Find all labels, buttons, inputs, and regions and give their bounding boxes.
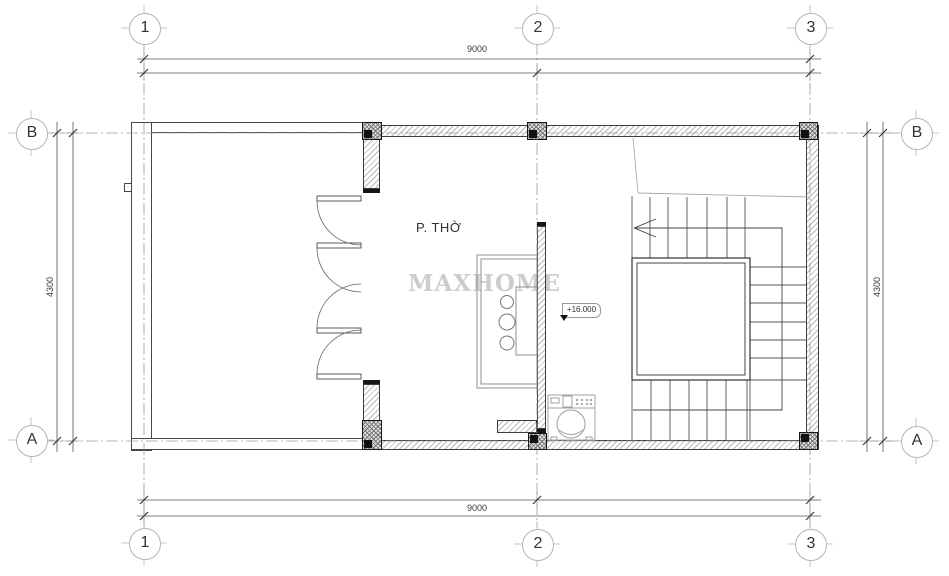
- dimension-right: 4300: [872, 272, 886, 302]
- column-fill: [364, 440, 372, 448]
- column-grid2-top: [527, 122, 547, 140]
- floor-plan-canvas: MAXHOME: [0, 0, 949, 576]
- washer-door: [557, 410, 585, 438]
- stairwell-railing: [632, 258, 750, 380]
- column-grid1-top: [362, 122, 382, 140]
- incense-bowl: [501, 296, 514, 309]
- terrace-bottom-wall: [131, 438, 365, 450]
- elevation-triangle-icon: [560, 315, 568, 321]
- grid-bubble-3-bottom: 3: [795, 529, 827, 561]
- dimension-bottom: 9000: [447, 503, 507, 513]
- grid-bubble-1-bottom: 1: [129, 528, 161, 560]
- dimension-left: 4300: [45, 272, 59, 302]
- column-grid3-top: [799, 122, 818, 140]
- main-right-wall: [806, 137, 819, 441]
- main-bottom-wall: [362, 440, 819, 450]
- wall-cap: [363, 189, 380, 193]
- grid-bubble-B-right: B: [901, 118, 933, 150]
- incense-bowl: [500, 336, 514, 350]
- door-leaf: [317, 328, 361, 333]
- column-fill: [529, 130, 537, 138]
- walk-line-arrow: [634, 219, 656, 237]
- room-label: P. THỜ: [416, 220, 461, 235]
- door-leaf: [317, 243, 361, 248]
- incense-bowl: [499, 314, 515, 330]
- column-grid3-bottom: [799, 432, 818, 450]
- center-partition-wall: [537, 226, 546, 429]
- staircase: [632, 196, 807, 440]
- door-swings: [317, 196, 361, 379]
- main-top-wall: [362, 125, 819, 137]
- stair-walk-line: [633, 219, 782, 410]
- grid-bubble-2-top: 2: [522, 13, 554, 45]
- washing-machine: [548, 395, 595, 440]
- stair-break-line: [633, 138, 810, 197]
- washer-buttons: [576, 399, 592, 405]
- dimension-top: 9000: [447, 44, 507, 54]
- wall-notch: [124, 183, 132, 192]
- grid-bubble-A-left: A: [16, 425, 48, 457]
- door-jamb-wall-upper: [363, 137, 380, 189]
- door-leaf: [317, 196, 361, 201]
- door-swing-arcs: [317, 201, 361, 374]
- column-grid2-bottom: [528, 433, 547, 450]
- column-fill: [801, 130, 809, 138]
- column-fill: [530, 435, 538, 443]
- wall-cap: [537, 222, 546, 226]
- grid-bubble-2-bottom: 2: [522, 529, 554, 561]
- column-fill: [801, 434, 809, 442]
- door-leaf: [317, 374, 361, 379]
- grid-bubble-A-right: A: [901, 426, 933, 458]
- terrace-left-wall: [131, 122, 152, 451]
- column-grid1-bottom: [362, 420, 382, 450]
- grid-bubble-3-top: 3: [795, 13, 827, 45]
- wall-return-stub: [497, 420, 537, 433]
- grid-bubble-B-left: B: [16, 118, 48, 150]
- grid-bubble-1-top: 1: [129, 13, 161, 45]
- column-fill: [364, 130, 372, 138]
- wall-cap: [363, 380, 380, 384]
- terrace-top-wall: [131, 122, 365, 133]
